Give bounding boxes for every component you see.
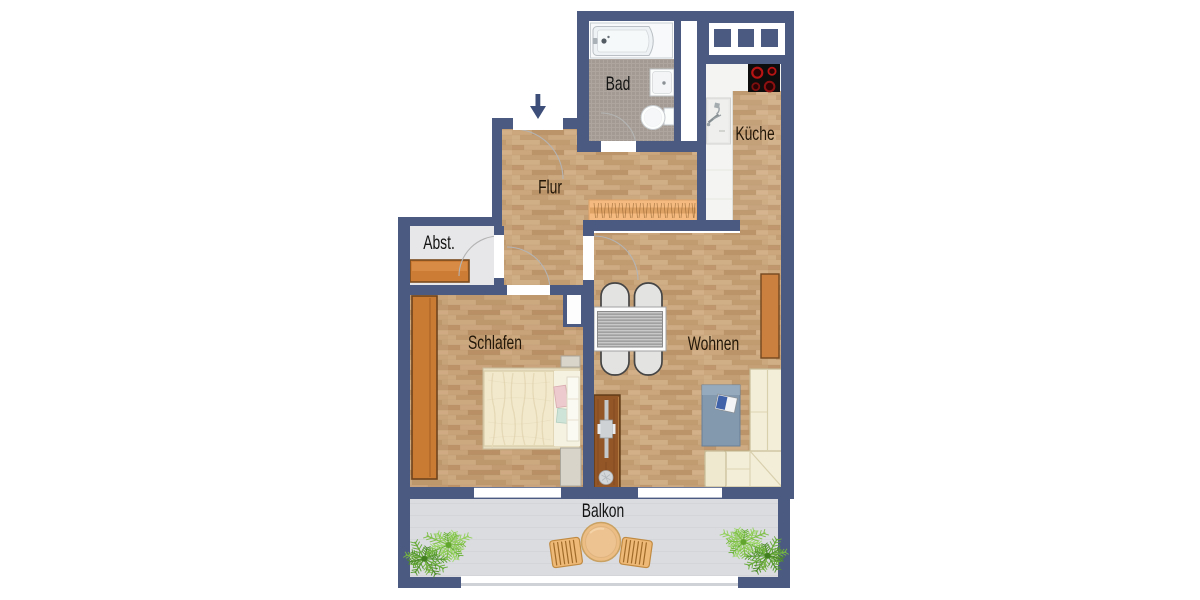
- svg-text:Balkon: Balkon: [582, 500, 624, 522]
- svg-text:Bad: Bad: [606, 73, 631, 95]
- svg-text:Küche: Küche: [735, 123, 774, 145]
- svg-text:Wohnen: Wohnen: [688, 333, 739, 355]
- svg-text:Flur: Flur: [538, 176, 562, 198]
- svg-text:Schlafen: Schlafen: [468, 332, 522, 354]
- svg-text:Abst.: Abst.: [423, 232, 455, 254]
